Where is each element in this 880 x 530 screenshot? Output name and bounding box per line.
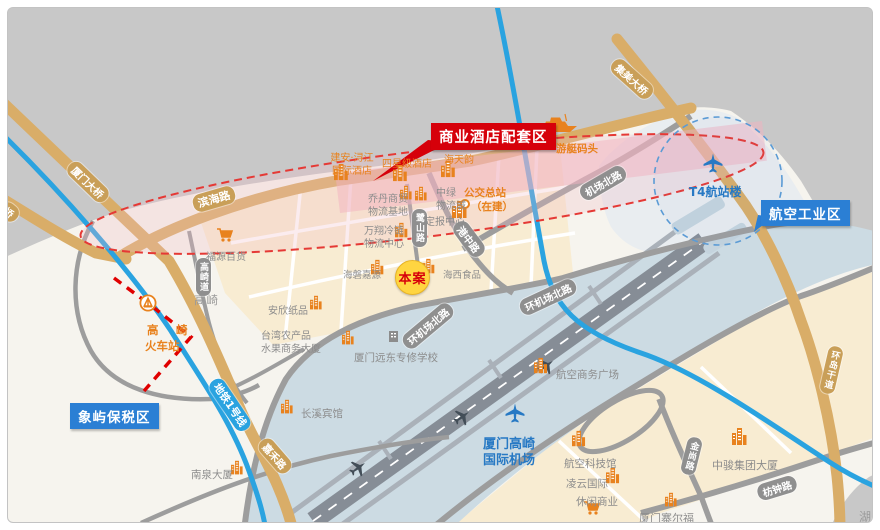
poi-four-star-hotel: 四星级酒店 xyxy=(382,158,432,171)
poi-qiaodan: 乔丹商贸物流基地 xyxy=(368,193,408,219)
area-label-gaoqi: 高崎 xyxy=(194,293,219,308)
poi-fuyuan: 福源百货 xyxy=(206,251,246,264)
poi-text: （在建） xyxy=(471,201,513,213)
train-station-icon xyxy=(140,295,155,310)
poi-wanxiang: 万翔冷链物流中心 xyxy=(364,225,404,251)
station-label-qi: 崎 xyxy=(176,322,188,338)
map-screenshot: 厦门大桥 桥 滨海路 集美大桥 机场北路 环机场北路 环机场北路 港中路 鹭山路… xyxy=(0,0,880,530)
poi-yacht-marina: 游艇码头 xyxy=(556,143,598,157)
poi-text: 国际酒店 xyxy=(332,166,372,177)
poi-anxin: 安欣纸品 xyxy=(268,305,308,318)
map-canvas xyxy=(8,8,873,523)
poi-text: 中绿 xyxy=(436,188,456,199)
poi-haixi: 海西食品 xyxy=(443,270,481,282)
station-label-gao: 高 xyxy=(147,322,159,338)
callout-bonded-zone: 象屿保税区 xyxy=(70,403,159,429)
poi-hangkong-plaza: 航空商务广场 xyxy=(556,369,619,383)
poi-text: 物流城 xyxy=(436,201,466,212)
poi-zhonglv: 中绿物流城 xyxy=(436,187,466,213)
poi-taiwan: 台湾农产品水果商务大厦 xyxy=(261,330,321,356)
poi-zhongjun: 中骏集团大厦 xyxy=(712,459,778,473)
poi-text: 乔丹商贸 xyxy=(368,194,408,205)
callout-aviation-zone: 航空工业区 xyxy=(761,200,850,226)
poi-text: 万翔冷链 xyxy=(364,226,404,237)
poi-xiuxian: 休闲商业 xyxy=(576,496,618,510)
poi-jianan-hotel: 建安·浔江国际酒店 xyxy=(323,152,381,178)
poi-keji-museum: 航空科技馆 xyxy=(564,458,617,472)
poi-text: 国际机场 xyxy=(483,453,535,468)
poi-text: 台湾农产品 xyxy=(261,331,311,342)
poi-dingbao: 定报中心 xyxy=(425,216,465,229)
poi-text: 物流中心 xyxy=(364,239,404,250)
station-label-huochezhan: 火车站 xyxy=(145,338,180,354)
poi-text: 公交总站 xyxy=(464,187,506,199)
airport-name: 厦门高崎国际机场 xyxy=(474,437,544,468)
poi-haitianyun: 海天韵 xyxy=(444,154,474,167)
poi-text: 水果商务大厦 xyxy=(261,344,321,355)
poi-text: 物流基地 xyxy=(368,207,408,218)
area-label-lake: 湖 xyxy=(859,510,872,523)
poi-zhaier: 厦门寨尔福 xyxy=(639,512,694,523)
poi-text: 建安·浔江 xyxy=(330,153,373,164)
t4-terminal-label: T4航站楼 xyxy=(689,185,742,199)
poi-nanquan: 南泉大厦 xyxy=(191,469,233,483)
poi-yuandong-school: 厦门远东专修学校 xyxy=(354,352,438,366)
map-frame: 厦门大桥 桥 滨海路 集美大桥 机场北路 环机场北路 环机场北路 港中路 鹭山路… xyxy=(7,7,873,523)
poi-bus-terminal: 公交总站（在建） xyxy=(464,187,513,214)
callout-hotel-zone: 商业酒店配套区 xyxy=(431,123,556,150)
poi-lingyun: 凌云国际 xyxy=(566,478,608,492)
site-marker: 本案 xyxy=(395,260,430,295)
poi-haipan: 海磐嘉源 xyxy=(343,270,381,282)
poi-changxi: 长溪宾馆 xyxy=(301,408,343,422)
poi-text: 厦门高崎 xyxy=(483,437,535,452)
